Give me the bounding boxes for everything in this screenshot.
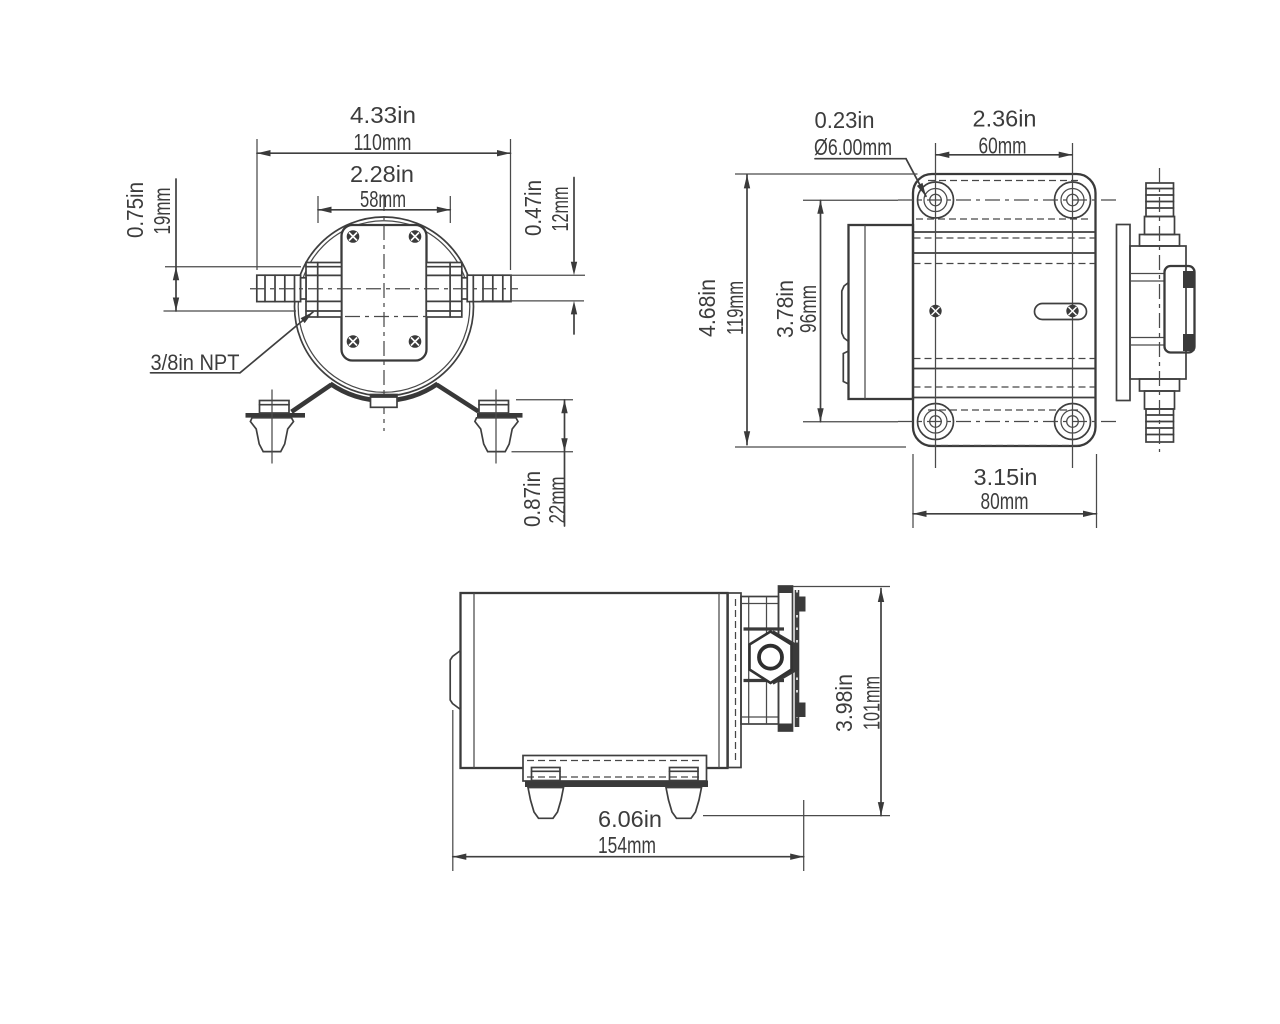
svg-text:96mm: 96mm — [795, 285, 821, 333]
svg-text:3.15in: 3.15in — [974, 464, 1038, 490]
svg-text:0.47in: 0.47in — [520, 180, 546, 236]
svg-text:4.68in: 4.68in — [694, 279, 720, 337]
svg-text:4.33in: 4.33in — [350, 102, 416, 128]
svg-text:2.36in: 2.36in — [973, 106, 1037, 132]
svg-text:0.75in: 0.75in — [122, 182, 148, 238]
svg-text:3/8in NPT: 3/8in NPT — [151, 350, 240, 375]
svg-text:2.28in: 2.28in — [350, 161, 414, 187]
svg-text:0.87in: 0.87in — [519, 471, 545, 527]
svg-text:80mm: 80mm — [981, 488, 1029, 514]
svg-text:3.98in: 3.98in — [831, 674, 857, 732]
svg-text:110mm: 110mm — [354, 129, 412, 155]
svg-text:0.23in: 0.23in — [815, 107, 875, 133]
svg-text:19mm: 19mm — [149, 188, 175, 235]
svg-text:6.06in: 6.06in — [598, 806, 662, 832]
svg-text:58mm: 58mm — [360, 186, 406, 212]
svg-text:119mm: 119mm — [722, 281, 748, 335]
svg-text:22mm: 22mm — [544, 477, 570, 524]
svg-text:154mm: 154mm — [598, 832, 656, 858]
svg-text:Ø6.00mm: Ø6.00mm — [814, 134, 892, 160]
svg-text:12mm: 12mm — [547, 187, 573, 232]
